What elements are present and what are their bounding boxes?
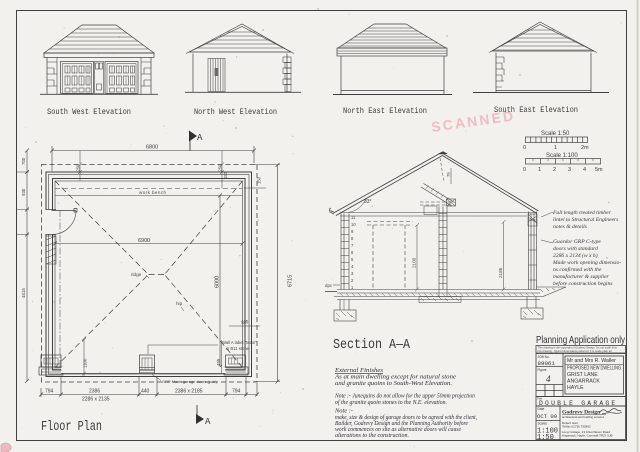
svg-text:2386 x 2185: 2386 x 2185 — [175, 389, 203, 395]
svg-text:33°: 33° — [364, 199, 372, 205]
svg-text:OCT 09: OCT 09 — [537, 413, 557, 420]
svg-text:manufacturer & supplier: manufacturer & supplier — [553, 273, 610, 280]
svg-text:Scale 1:50: Scale 1:50 — [541, 131, 570, 137]
svg-text:1:50: 1:50 — [537, 434, 554, 442]
svg-text:Scales: Scales — [538, 422, 548, 426]
svg-text:794: 794 — [45, 389, 54, 395]
svg-text:of the granite quoin stones to: of the granite quoin stones to the N.E. … — [335, 399, 447, 406]
svg-text:Mr and Mrs R. Waller: Mr and Mrs R. Waller — [567, 358, 616, 364]
svg-text:4: 4 — [546, 374, 551, 384]
svg-text:hip: hip — [176, 301, 183, 306]
svg-text:Floor Plan: Floor Plan — [41, 419, 102, 435]
svg-text:GRP Made garage doors (pair): GRP Made garage doors (pair) — [162, 379, 218, 384]
svg-text:ridge: ridge — [131, 272, 142, 277]
svg-text:6900: 6900 — [138, 238, 150, 244]
svg-text:Guardor GRP C-type: Guardor GRP C-type — [553, 239, 601, 245]
svg-text:Full length treated timber: Full length treated timber — [552, 210, 612, 216]
svg-text:3: 3 — [351, 271, 354, 276]
svg-text:2100: 2100 — [412, 257, 417, 268]
svg-text:1100: 1100 — [83, 358, 88, 368]
svg-text:2286 x 2135: 2286 x 2135 — [82, 397, 110, 403]
svg-text:architectural and building ser: architectural and building services — [562, 415, 605, 419]
svg-text:2386: 2386 — [89, 389, 100, 395]
svg-text:A: A — [205, 417, 211, 427]
svg-text:794: 794 — [232, 389, 241, 395]
svg-text:A: A — [197, 133, 203, 143]
svg-text:6000: 6000 — [215, 276, 221, 288]
svg-text:North West Elevation: North West Elevation — [194, 108, 277, 117]
svg-text:Scale 1:100: Scale 1:100 — [546, 153, 578, 159]
svg-text:10: 10 — [351, 222, 356, 227]
svg-text:950: 950 — [241, 320, 249, 325]
svg-text:SCANNED: SCANNED — [430, 107, 516, 135]
svg-text:Figure: Figure — [538, 368, 547, 372]
svg-text:0: 0 — [523, 167, 526, 173]
svg-text:930: 930 — [21, 188, 26, 196]
svg-text:89061: 89061 — [538, 360, 556, 367]
svg-text:4: 4 — [583, 167, 586, 173]
svg-text:Planning Application only: Planning Application only — [536, 334, 626, 346]
svg-text:Tel/fax 01736 755892: Tel/fax 01736 755892 — [562, 425, 591, 429]
svg-text:150: 150 — [257, 176, 262, 184]
svg-text:GRIST LANE: GRIST LANE — [567, 372, 598, 378]
svg-text:6715: 6715 — [288, 275, 294, 287]
svg-text:2m: 2m — [581, 145, 589, 151]
svg-text:2185: 2185 — [498, 267, 503, 278]
svg-text:Wall A label "Maxi": Wall A label "Maxi" — [222, 340, 257, 345]
svg-text:150: 150 — [223, 171, 228, 179]
svg-text:ANGARRACK: ANGARRACK — [567, 379, 600, 385]
svg-text:5: 5 — [351, 257, 354, 262]
svg-text:5m: 5m — [595, 167, 603, 173]
svg-text:3: 3 — [568, 167, 571, 173]
svg-text:440: 440 — [141, 389, 150, 395]
svg-text:Section A—A: Section A—A — [333, 337, 410, 353]
svg-text:1: 1 — [554, 145, 557, 151]
svg-text:250: 250 — [76, 164, 81, 172]
svg-text:6: 6 — [351, 250, 354, 255]
svg-text:2: 2 — [553, 167, 556, 173]
svg-text:dpc: dpc — [325, 283, 333, 288]
svg-text:455: 455 — [216, 358, 221, 366]
svg-text:doors with standard: doors with standard — [553, 246, 598, 252]
svg-text:work bench: work bench — [139, 190, 167, 195]
svg-text:7: 7 — [351, 243, 354, 248]
svg-text:and granite quoins to South-We: and granite quoins to South-West Elevati… — [335, 380, 452, 387]
svg-text:in B11 stone: in B11 stone — [226, 346, 250, 351]
svg-text:11: 11 — [351, 215, 356, 220]
svg-text:JOB No.: JOB No. — [538, 355, 550, 359]
svg-text:4515: 4515 — [21, 288, 26, 298]
svg-text:700: 700 — [21, 157, 26, 165]
svg-text:before construction begins: before construction begins — [553, 280, 612, 287]
svg-text:2286 x 2134 (w x h): 2286 x 2134 (w x h) — [553, 252, 598, 259]
svg-text:8: 8 — [351, 236, 354, 241]
svg-text:this drawing - figured dimensi: this drawing - figured dimensions prefer… — [538, 349, 612, 353]
svg-text:4: 4 — [351, 264, 354, 269]
svg-text:9: 9 — [351, 229, 354, 234]
svg-text:Date: Date — [538, 407, 545, 411]
svg-text:6800: 6800 — [146, 145, 158, 151]
svg-text:Made work opening dimensio-: Made work opening dimensio- — [552, 260, 621, 266]
svg-text:notes & details: notes & details — [553, 224, 587, 230]
svg-text:lintel to Structural Engineers: lintel to Structural Engineers — [553, 217, 618, 223]
svg-text:0: 0 — [523, 145, 526, 151]
svg-text:alterations to the constructio: alterations to the construction. — [335, 432, 409, 439]
svg-text:2: 2 — [351, 278, 354, 283]
svg-text:PROPOSED NEW DWELLING: PROPOSED NEW DWELLING — [567, 366, 621, 372]
svg-text:75: 75 — [446, 172, 451, 177]
svg-text:North East Elevation: North East Elevation — [343, 107, 427, 116]
svg-text:250: 250 — [218, 164, 223, 172]
svg-text:ns confirmed with the: ns confirmed with the — [553, 266, 602, 273]
svg-text:HAYLE: HAYLE — [567, 385, 584, 391]
svg-text:Angarrack, Hayle, Cornwall TR2: Angarrack, Hayle, Cornwall TR27 5JB — [562, 434, 612, 438]
svg-text:1: 1 — [538, 167, 541, 173]
